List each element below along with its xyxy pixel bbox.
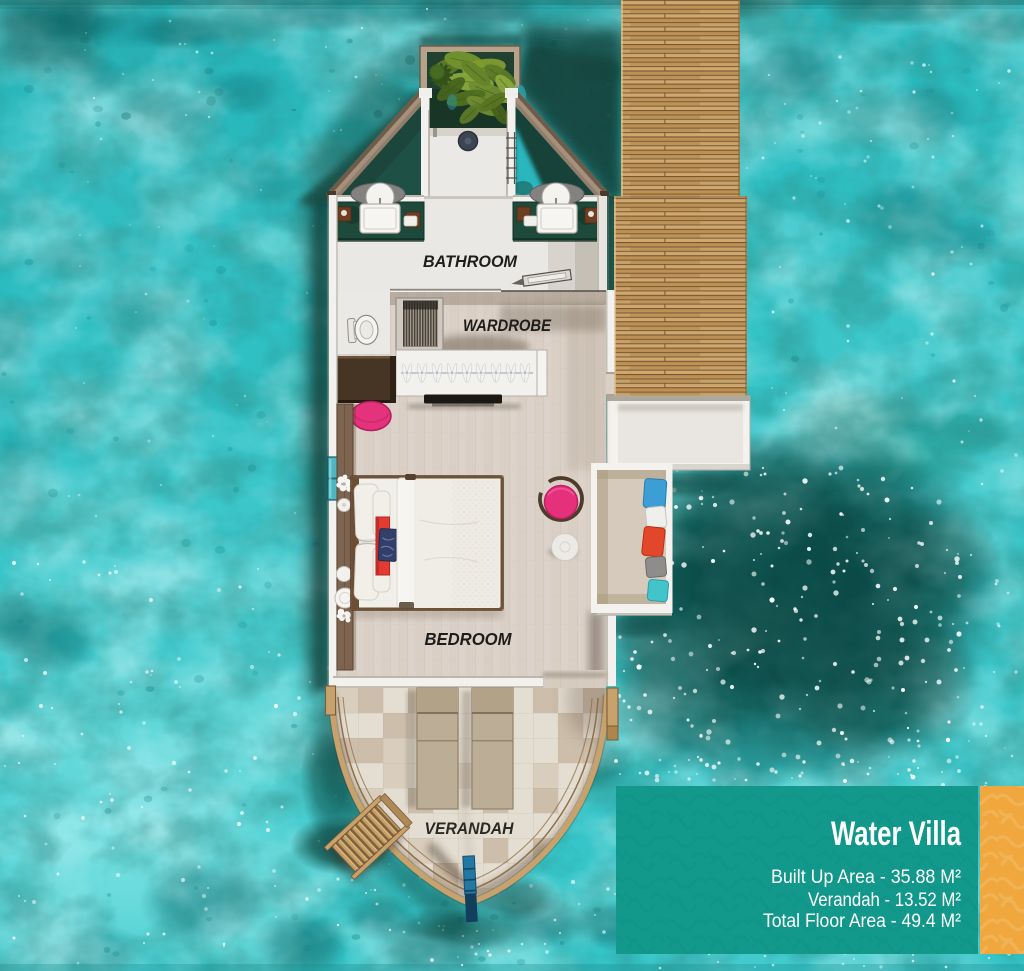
svg-text:VERANDAH: VERANDAH	[425, 820, 515, 838]
svg-text:Total Floor Area - 49.4 M²: Total Floor Area - 49.4 M²	[763, 911, 961, 932]
svg-text:BEDROOM: BEDROOM	[425, 629, 512, 649]
svg-text:WARDROBE: WARDROBE	[463, 317, 552, 335]
svg-text:Water Villa: Water Villa	[831, 815, 962, 853]
svg-text:Built Up Area - 35.88 M²: Built Up Area - 35.88 M²	[771, 867, 961, 888]
svg-text:Verandah - 13.52 M²: Verandah - 13.52 M²	[808, 890, 961, 911]
svg-text:BATHROOM: BATHROOM	[423, 253, 518, 271]
